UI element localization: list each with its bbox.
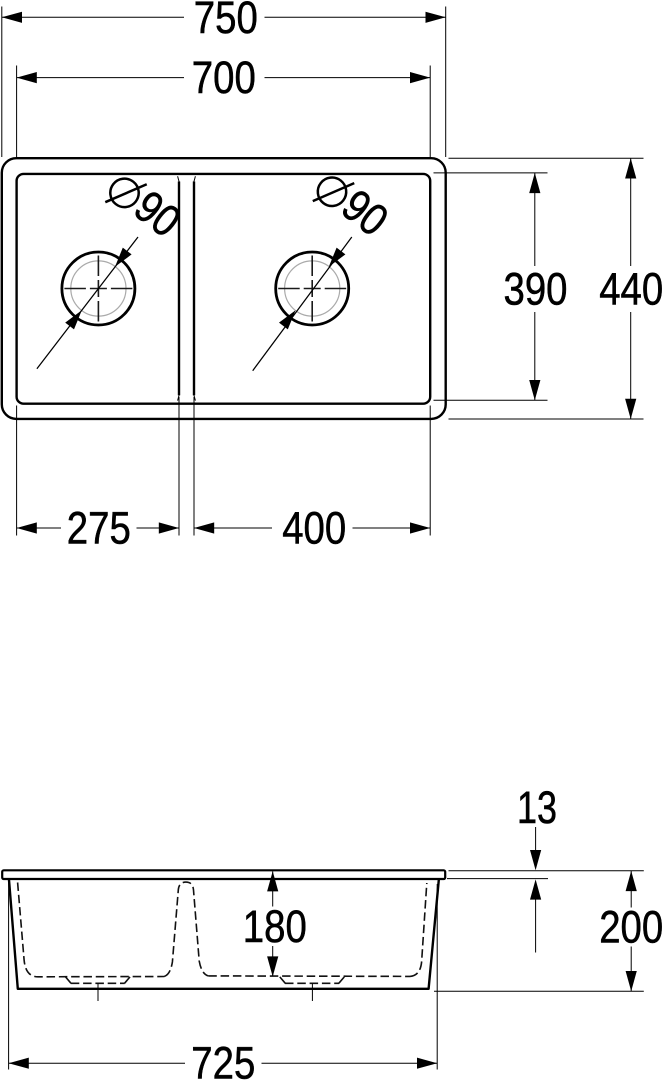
svg-text:400: 400 bbox=[282, 503, 346, 554]
svg-text:725: 725 bbox=[191, 1038, 255, 1080]
svg-text:275: 275 bbox=[67, 503, 131, 554]
svg-text:180: 180 bbox=[243, 901, 307, 952]
svg-text:200: 200 bbox=[599, 902, 663, 953]
svg-text:700: 700 bbox=[192, 52, 256, 103]
svg-text:750: 750 bbox=[194, 0, 258, 43]
svg-text:13: 13 bbox=[517, 782, 557, 833]
svg-text:390: 390 bbox=[504, 264, 568, 315]
svg-text:440: 440 bbox=[599, 264, 663, 315]
